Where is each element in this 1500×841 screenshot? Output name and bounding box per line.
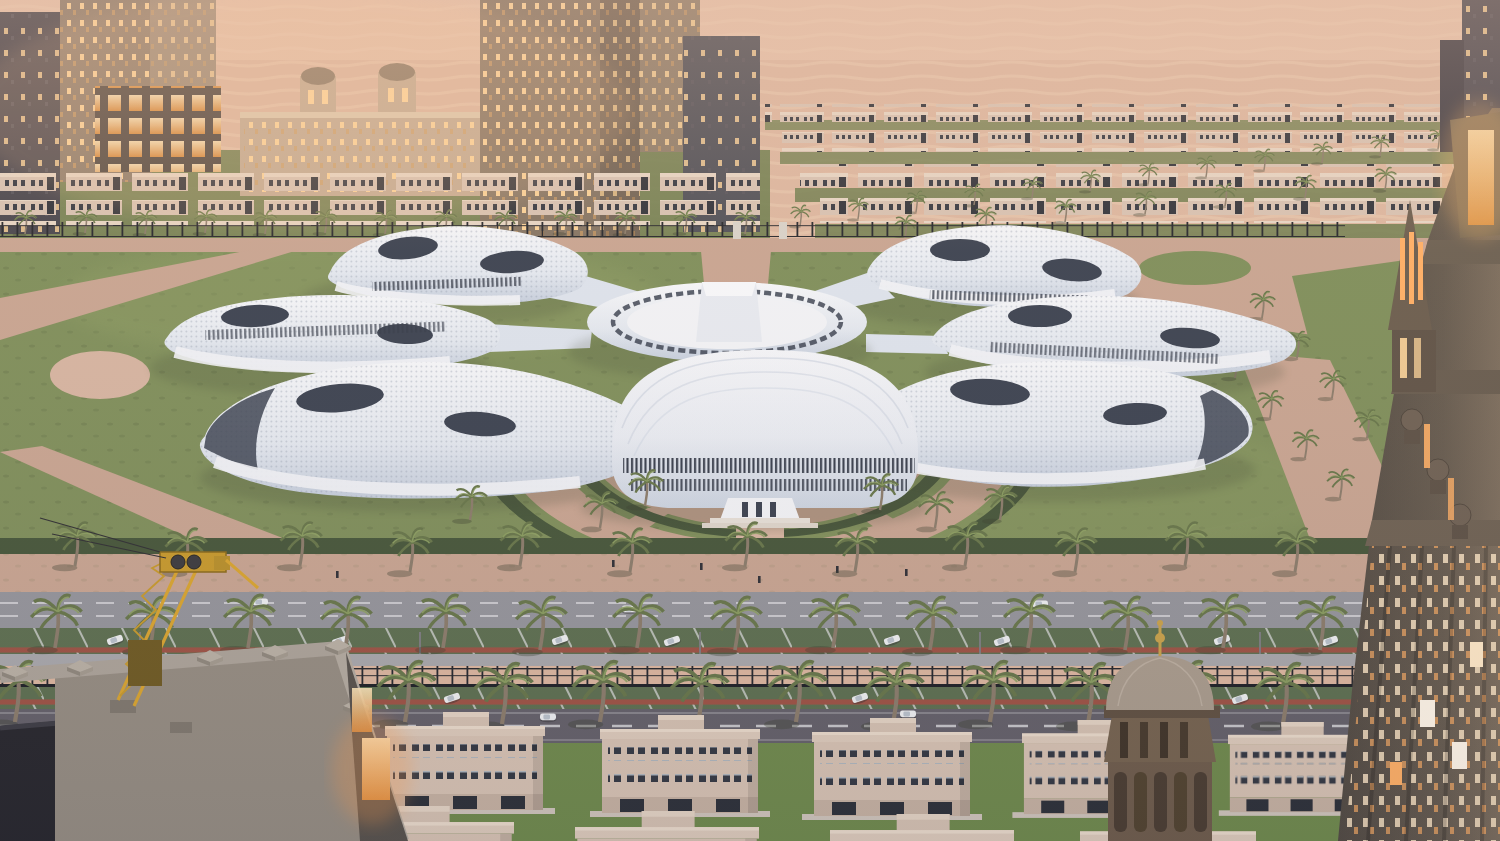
scene-canvas	[0, 0, 1500, 841]
rendered-scene	[0, 0, 1500, 841]
